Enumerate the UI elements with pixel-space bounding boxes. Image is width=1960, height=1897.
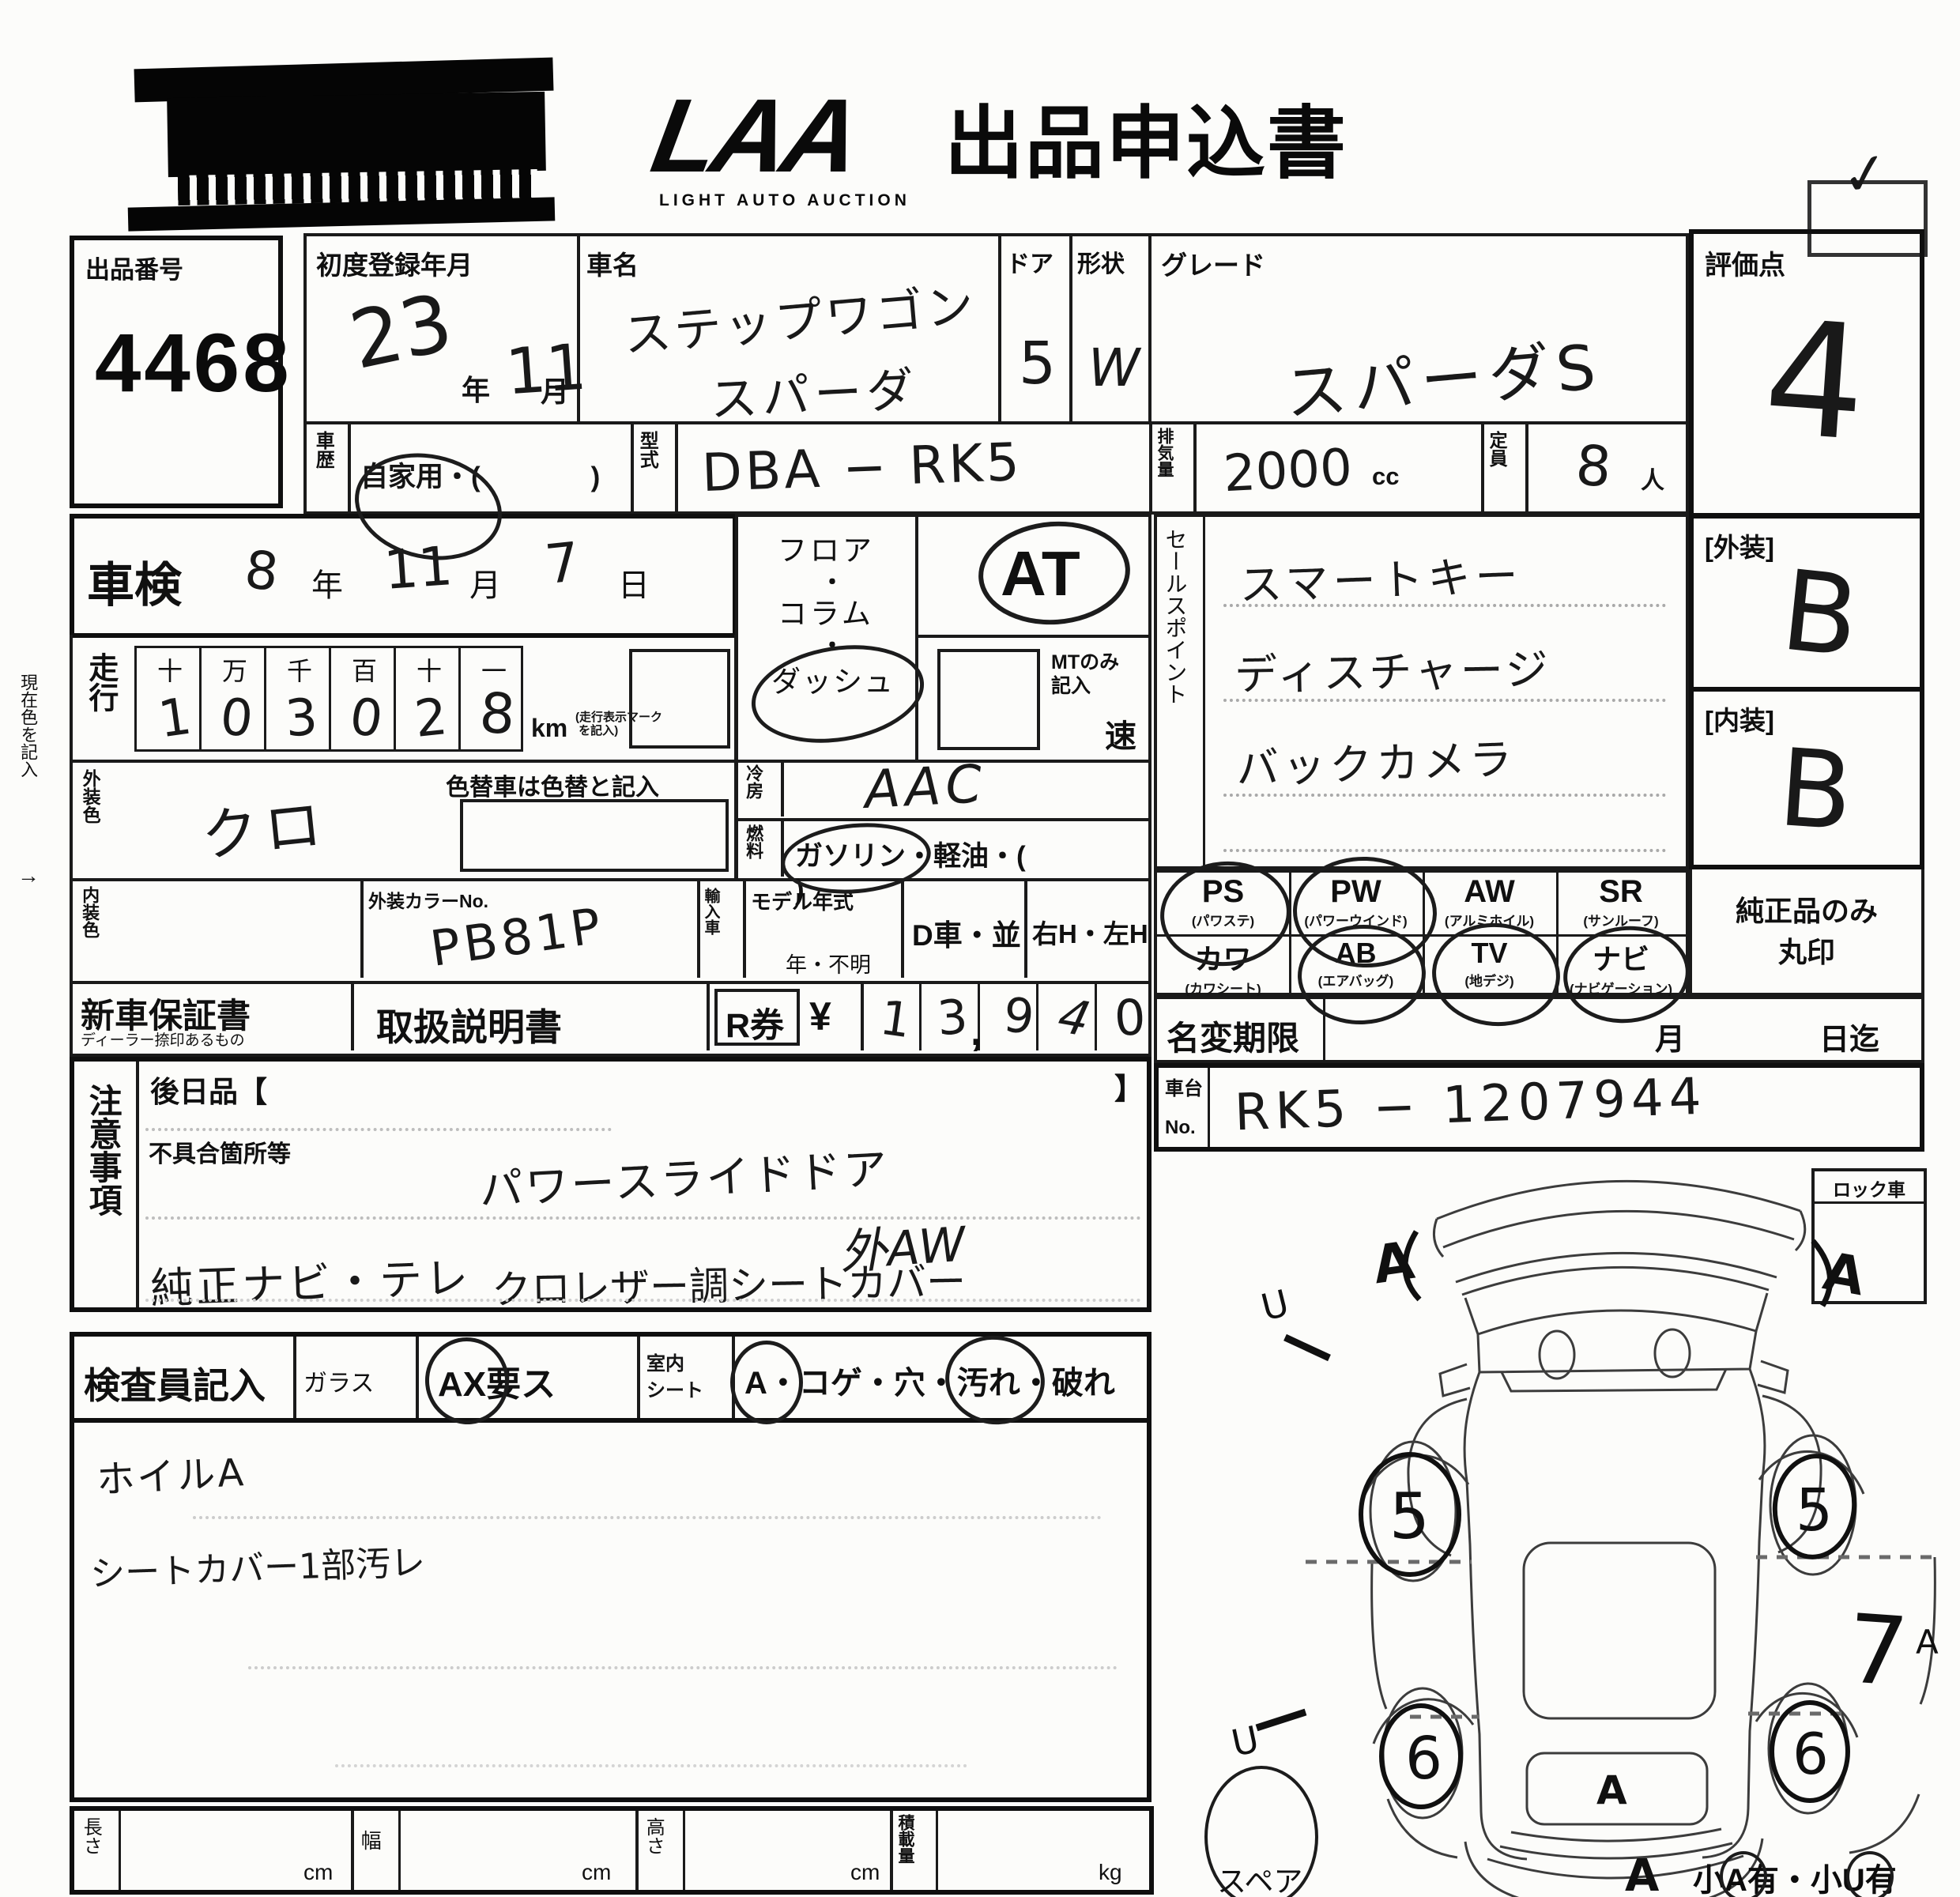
lot-box: 出品番号 4468 [70, 236, 283, 508]
right-side-mark-7: 7 [1844, 1594, 1912, 1708]
registration-label: 初度登録年月 [316, 244, 473, 282]
inspector-header: 検査員記入 ガラス AX要ス 室内シート A・コゲ・穴・汚れ・破れ [70, 1332, 1151, 1423]
glass-option-a: A [438, 1365, 463, 1404]
shape-value: W [1088, 338, 1140, 398]
interior-grade-box: [内装] B [1689, 692, 1924, 869]
car-name-label: 車名 [586, 244, 639, 282]
mt-speed: 速 [1105, 711, 1136, 756]
right-side-mark-a: A [1916, 1623, 1939, 1661]
registration-month-unit: 月 [541, 369, 569, 410]
odo-digit: 0 [346, 688, 386, 750]
at-value: AT [1001, 537, 1080, 610]
odo-header: 万 [222, 651, 247, 688]
import-label: 輸入車 [702, 888, 718, 978]
dim-width-unit: cm [582, 1860, 611, 1885]
exterior-grade-box: [外装] B [1689, 514, 1924, 692]
chassis-label: 車台 [1165, 1073, 1203, 1100]
model-code-value: DBA − RK5 [701, 432, 1023, 503]
seat-option-a: A [744, 1366, 767, 1401]
shape-box: 形状 W [1071, 233, 1151, 424]
equipment-grid: PS(パワステ) PW(パワーウインド) AW(アルミホイル) SR(サンルーフ… [1154, 869, 1689, 996]
genuine-line1: 純正品のみ [1692, 888, 1921, 930]
front-left-wheel-mark: 5 [1389, 1480, 1430, 1553]
sales-point-box: セールスポイント スマートキー ディスチャージ バックカメラ [1154, 514, 1689, 869]
car-name-line2: スパーダ [708, 351, 920, 431]
exterior-grade-value: B [1776, 546, 1865, 682]
mileage-box: 走行 十1 万0 千3 百0 十2 一8 km (走行表示マーク を記入) [70, 635, 737, 763]
equip-tv: TV(地デジ) [1423, 937, 1556, 993]
laa-logo-subtext: LIGHT AUTO AUCTION [659, 191, 910, 210]
r-ticket-digit: 4 [1048, 990, 1101, 1047]
sales-point-item: バックカメラ [1235, 724, 1517, 796]
score-box: 評価点 4 [1689, 229, 1924, 518]
cooling-box: 冷房 AAC [735, 761, 1151, 821]
dim-length-label: 長さ [81, 1817, 100, 1890]
color-change-box [460, 799, 729, 872]
sales-point-label: セールスポイント [1163, 528, 1186, 860]
auction-sheet: LAA LIGHT AUTO AUCTION 出品申込書 ✓ 現在色を記入 → … [0, 0, 1960, 1897]
seat-option-stain: 汚れ [957, 1366, 1020, 1401]
check-mark: ✓ [1837, 138, 1893, 210]
odo-digit: 0 [217, 688, 255, 749]
glass-label: ガラス [303, 1363, 374, 1398]
notes-line4: クロレザー調シートカバー [491, 1250, 966, 1315]
doors-label: ドア [1006, 244, 1053, 279]
lot-number: 4468 [95, 316, 292, 411]
notes-defect-label: 不具合箇所等 [149, 1134, 291, 1169]
registration-year-unit: 年 [462, 368, 490, 409]
car-damage-diagram: A A 5 5 6 6 U U 7 A A A [1185, 1130, 1960, 1897]
margin-note-arrow: → [17, 863, 40, 888]
drive-dash: ダッシュ [771, 658, 895, 700]
inspector-label: 検査員記入 [84, 1357, 266, 1409]
dim-length-unit: cm [303, 1860, 333, 1885]
lot-label: 出品番号 [85, 250, 183, 285]
interior-grade-value: B [1775, 726, 1856, 854]
at-box: AT [918, 514, 1151, 638]
r-ticket-comma: , [971, 1008, 982, 1055]
shaken-year-unit: 年 [311, 560, 343, 605]
dim-load-label: 積載量 [896, 1814, 914, 1891]
exterior-grade-label: [外装] [1705, 526, 1774, 564]
dim-height-unit: cm [850, 1860, 880, 1885]
registration-year: 23 [342, 276, 460, 387]
interior-grade-label: [内装] [1705, 700, 1774, 737]
shaken-month-unit: 月 [469, 560, 501, 605]
ext-color-label: 外装色 [81, 769, 100, 875]
handle-label: 右H・左H [1032, 913, 1148, 951]
color-change-note: 色替車は色替と記入 [446, 767, 659, 802]
drive-box: フロア ・ コラム ・ ダッシュ [735, 514, 918, 763]
equip-ab: AB(エアバッグ) [1289, 937, 1423, 993]
score-label: 評価点 [1705, 243, 1785, 282]
fuel-box: 燃料 ガソリン・軽油・() [735, 821, 1151, 881]
equip-kawa: カワ(カワシート) [1157, 937, 1289, 993]
name-change-label: 名変期限 [1167, 1012, 1299, 1060]
odo-header: 百 [352, 651, 377, 688]
inspector-note2: シートカバー1部汚レ [89, 1534, 426, 1597]
laa-logo: LAA LIGHT AUTO AUCTION [654, 76, 939, 210]
r-ticket-digit: 0 [1113, 988, 1147, 1047]
odo-header: 十 [157, 651, 183, 688]
car-name-line1: ステップワゴン [620, 267, 979, 367]
capacity-unit: 人 [1641, 461, 1664, 496]
notes-line3: 純正ナビ・テレ [149, 1243, 473, 1316]
mt-note: MTのみ記入 [1051, 651, 1119, 698]
car-name-box: 車名 ステップワゴン スパーダ [577, 233, 1001, 424]
grade-label: グレード [1161, 244, 1265, 282]
doors-box: ドア 5 [1000, 233, 1072, 424]
page-title: 出品申込書 [944, 79, 1347, 194]
r-ticket-digit: 9 [1001, 987, 1036, 1046]
mileage-blank-box [629, 649, 730, 749]
margin-note: 現在色を記入 [19, 673, 37, 863]
mileage-label: 走行 [84, 652, 115, 747]
grade-value: スパーダS [1281, 318, 1605, 434]
int-color-row: 内装色 外装カラーNo. PB81P 輸入車 モデル年式 年・不明 D車・並 右… [70, 881, 1151, 984]
model-code-label: 型式 [637, 431, 657, 510]
laa-logo-text: LAA [644, 76, 865, 195]
rear-center-mark: A [1596, 1767, 1627, 1813]
glass-options: AX要ス [438, 1356, 556, 1406]
cooling-value: AAC [863, 753, 988, 820]
shaken-label: 車検 [87, 547, 182, 616]
odo-digit: 8 [477, 681, 517, 748]
genuine-box: 純正品のみ 丸印 [1689, 869, 1924, 996]
odo-digit: 3 [283, 688, 319, 749]
notes-label: 注意事項 [85, 1084, 120, 1297]
small-u: U [1842, 1863, 1865, 1897]
displacement-label: 排気量 [1155, 428, 1173, 511]
shaken-year: 8 [242, 539, 281, 603]
fuel-label: 燃料 [744, 824, 763, 877]
odo-header: 十 [416, 651, 442, 688]
shaken-day: 7 [542, 531, 582, 597]
small-damage-note: 小A有・小U有 [1693, 1854, 1897, 1897]
warranty-row: 新車保証書 ディーラー捺印あるもの 取扱説明書 R券 ¥ 1 3 , 9 4 0 [70, 984, 1151, 1057]
dimensions-row: 長さ cm 幅 cm 高さ cm 積載量 kg [70, 1806, 1154, 1895]
r-ticket-digit: 3 [936, 990, 970, 1047]
r-ticket-yen: ¥ [809, 994, 831, 1039]
history-value: 自家用・( ) [360, 454, 600, 495]
genuine-line2: 丸印 [1692, 930, 1921, 971]
int-color-label: 内装色 [81, 886, 99, 979]
score-value: 4 [1758, 286, 1871, 477]
notes-box: 注意事項 後日品【 】 不具合箇所等 パワースライドドア 外AW 純正ナビ・テレ… [70, 1057, 1151, 1312]
door-cut-lines [1306, 1557, 1932, 1717]
drive-sep: ・ [820, 626, 844, 661]
mt-box: MTのみ記入 速 [918, 636, 1151, 763]
doors-value: 5 [1019, 330, 1056, 398]
r-ticket-label: R券 [726, 998, 784, 1047]
manual-label: 取扱説明書 [376, 997, 562, 1051]
history-label: 車歴 [313, 431, 333, 510]
name-change-month: 月 [1655, 1015, 1685, 1058]
inspector-body: ホイルA シートカバー1部汚レ [70, 1423, 1151, 1802]
sales-point-item: ディスチャージ [1234, 635, 1551, 703]
u-mark-front-left: U [1257, 1281, 1293, 1329]
displacement-unit: cc [1372, 462, 1399, 491]
sales-point-item: スマートキー [1238, 541, 1524, 613]
small-a: A [1724, 1863, 1747, 1897]
shape-label: 形状 [1077, 244, 1125, 279]
color-no-label: 外装カラーNo. [368, 886, 488, 913]
fuel-gasoline: ガソリン [795, 841, 906, 872]
shaken-day-unit: 日 [618, 560, 650, 605]
capacity-value: 8 [1574, 433, 1613, 500]
rear-right-wheel-mark: 6 [1792, 1721, 1829, 1787]
equip-navi: ナビ(ナビゲーション) [1556, 937, 1686, 993]
odometer-grid: 十1 万0 千3 百0 十2 一8 [134, 646, 523, 752]
dim-height-label: 高さ [643, 1817, 663, 1890]
mileage-unit: km [531, 714, 567, 743]
rear-bumper-mark: A [1625, 1850, 1660, 1897]
history-row: 車歴 自家用・( ) 型式 DBA − RK5 排気量 2000 cc 定員 8… [303, 421, 1689, 515]
r-ticket-label-box: R券 [714, 989, 800, 1046]
warranty-sub: ディーラー捺印あるもの [81, 1028, 245, 1050]
odo-header: 千 [287, 651, 312, 688]
capacity-label: 定員 [1487, 431, 1506, 510]
r-ticket-digit: 1 [876, 990, 914, 1050]
notes-bracket: 】 [1114, 1065, 1144, 1107]
seat-label: 室内シート [646, 1351, 703, 1404]
cooling-label: 冷房 [744, 764, 763, 817]
dim-load-unit: kg [1099, 1860, 1122, 1885]
model-year-label: モデル年式 [751, 886, 854, 915]
shaken-month: 11 [382, 535, 454, 602]
ext-color-box: 外装色 クロ 色替車は色替と記入 [70, 761, 737, 881]
rear-left-wheel-mark: 6 [1405, 1725, 1442, 1793]
notes-line1: パワースライドドア [477, 1133, 891, 1217]
d-car-label: D車・並 [912, 911, 1021, 954]
model-year-suffix: 年・不明 [786, 948, 871, 979]
displacement-value: 2000 [1222, 439, 1354, 503]
dim-width-label: 幅 [359, 1830, 380, 1877]
seat-options: A・コゲ・穴・汚れ・破れ [744, 1357, 1115, 1403]
equip-sr: SR(サンルーフ) [1556, 873, 1686, 934]
inspector-note1: ホイルA [95, 1441, 247, 1504]
spare-label: スペア [1217, 1857, 1302, 1897]
mt-blank-box [937, 649, 1040, 750]
name-change-row: 名変期限 月 日迄 [1154, 996, 1924, 1063]
equip-pw: PW(パワーウインド) [1289, 873, 1423, 934]
equip-aw: AW(アルミホイル) [1423, 873, 1556, 934]
equip-ps: PS(パワステ) [1157, 873, 1289, 934]
name-change-day: 日迄 [1819, 1015, 1879, 1058]
ext-color-value: クロ [197, 777, 331, 873]
shaken-box: 車検 8 年 11 月 7 日 [70, 514, 737, 638]
odo-digit: 1 [155, 688, 195, 750]
notes-later-goods: 後日品【 [150, 1068, 267, 1111]
odo-digit: 2 [412, 688, 450, 749]
registration-box: 初度登録年月 23 年 11 月 [303, 233, 580, 424]
front-right-wheel-mark: 5 [1796, 1476, 1833, 1544]
grade-box: グレード スパーダS [1150, 233, 1689, 424]
barcode [134, 63, 581, 213]
